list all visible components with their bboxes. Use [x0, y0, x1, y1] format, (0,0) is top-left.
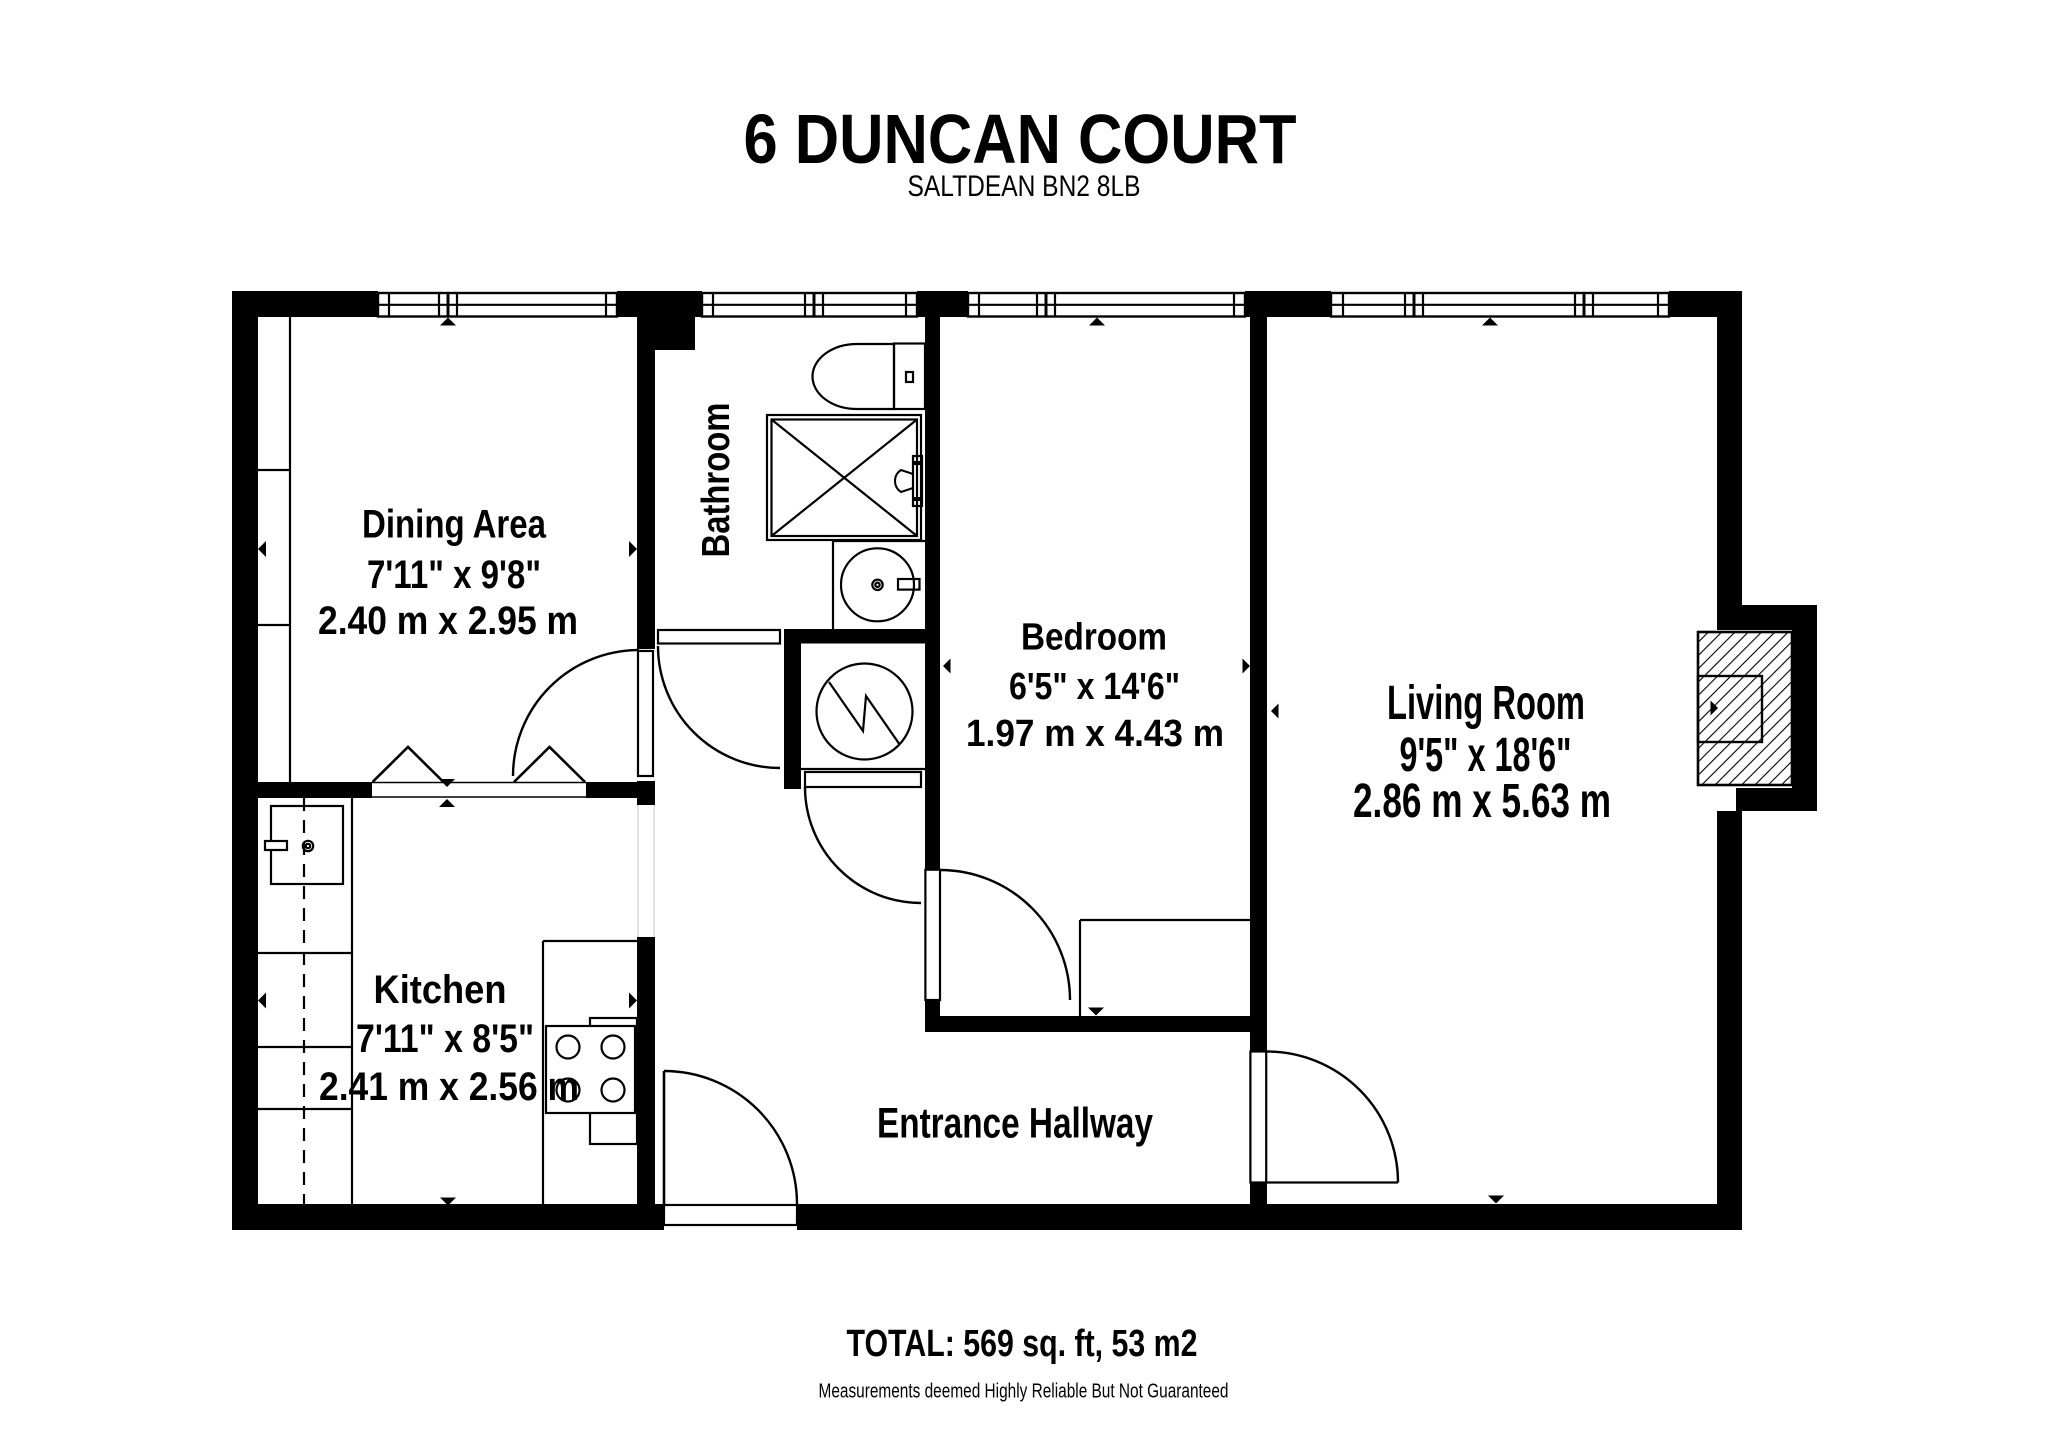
svg-text:Kitchen: Kitchen	[374, 968, 507, 1012]
svg-text:2.86 m x 5.63 m: 2.86 m x 5.63 m	[1353, 775, 1611, 828]
svg-text:6'5" x 14'6": 6'5" x 14'6"	[1009, 666, 1180, 708]
svg-text:7'11" x 9'8": 7'11" x 9'8"	[367, 553, 541, 597]
svg-text:2.40 m x 2.95 m: 2.40 m x 2.95 m	[318, 599, 578, 643]
svg-text:2.41 m x 2.56 m: 2.41 m x 2.56 m	[319, 1065, 579, 1109]
svg-text:Dining Area: Dining Area	[362, 503, 547, 547]
svg-text:Bedroom: Bedroom	[1021, 617, 1167, 659]
svg-text:1.97 m x 4.43 m: 1.97 m x 4.43 m	[966, 713, 1224, 755]
svg-text:Entrance Hallway: Entrance Hallway	[877, 1100, 1153, 1148]
svg-text:7'11" x 8'5": 7'11" x 8'5"	[356, 1017, 534, 1061]
svg-text:SALTDEAN BN2 8LB: SALTDEAN BN2 8LB	[908, 170, 1141, 203]
svg-text:Measurements deemed Highly Rel: Measurements deemed Highly Reliable But …	[819, 1380, 1229, 1403]
svg-text:6 DUNCAN COURT: 6 DUNCAN COURT	[744, 100, 1297, 178]
svg-text:Living Room: Living Room	[1387, 677, 1585, 730]
svg-text:TOTAL: 569 sq. ft, 53 m2: TOTAL: 569 sq. ft, 53 m2	[847, 1323, 1198, 1365]
svg-text:Bathroom: Bathroom	[695, 403, 738, 558]
